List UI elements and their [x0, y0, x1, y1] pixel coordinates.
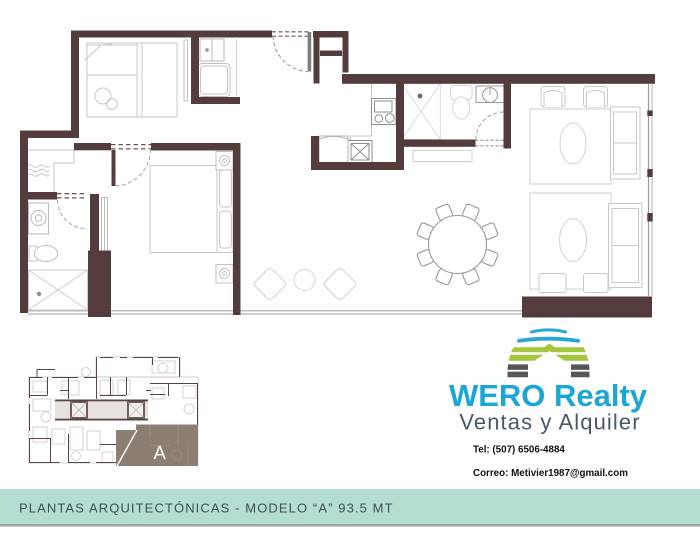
svg-text:Tel: (507) 6506-4884: Tel: (507) 6506-4884	[473, 445, 565, 456]
svg-text:WERO Realty: WERO Realty	[449, 378, 648, 413]
svg-text:Correo: Metivier1987@gmail.co: Correo: Metivier1987@gmail.com	[473, 468, 628, 479]
svg-text:PLANTAS ARQUITECTÓNICAS - MODE: PLANTAS ARQUITECTÓNICAS - MODELO “A” 93.…	[19, 501, 394, 516]
svg-text:A: A	[154, 442, 167, 463]
svg-text:Ventas y Alquiler: Ventas y Alquiler	[459, 410, 640, 435]
